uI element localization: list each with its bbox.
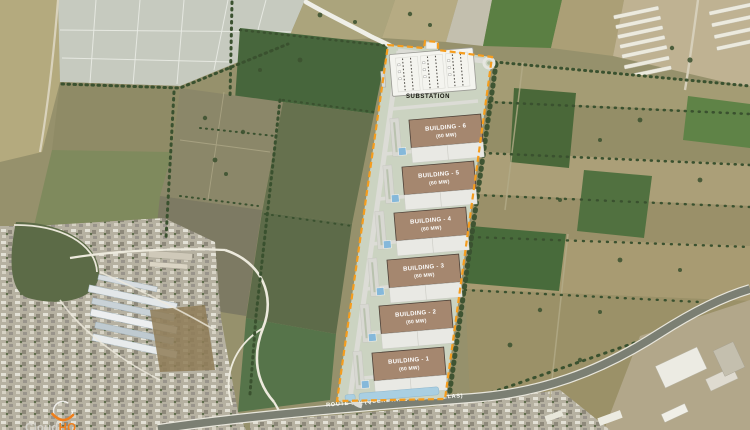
gate-house	[426, 42, 437, 49]
water-tank	[391, 194, 399, 202]
water-tank	[383, 240, 391, 248]
substation-diagram	[379, 48, 476, 98]
watermark-text: CloudHQ	[25, 423, 76, 430]
satellite-map[interactable]: ROUTE 100 (QUERETARO - HIGUERILLAS)	[0, 0, 750, 430]
water-tank	[376, 287, 384, 295]
substation-label: SUBSTATION	[406, 94, 450, 100]
water-tank	[398, 147, 406, 155]
water-tank	[368, 333, 376, 341]
water-tank	[361, 380, 369, 388]
